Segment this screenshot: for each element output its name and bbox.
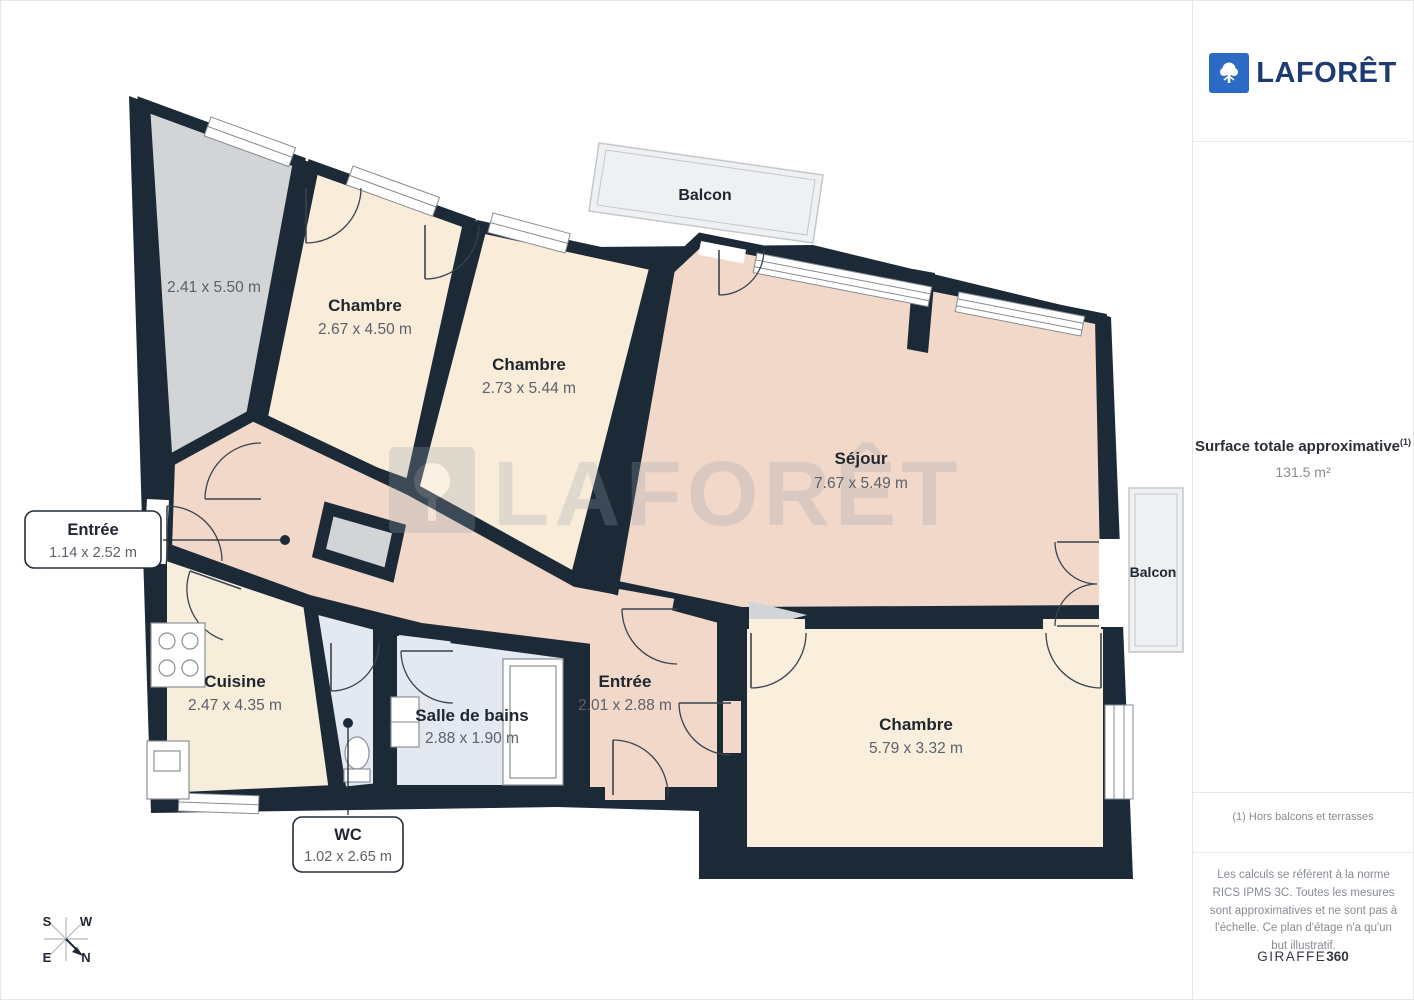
label-chambre3-dims: 5.79 x 3.32 m: [869, 740, 963, 757]
floorplan-canvas: LAFORÊT Entrée 1.14 x 2.52 m WC 1.02 x 2…: [1, 1, 1194, 1000]
watermark-tree-trunk: [428, 493, 436, 521]
label-chambre3-name: Chambre: [879, 715, 953, 734]
surface-footnote: (1) Hors balcons et terrasses: [1193, 811, 1413, 823]
giraffe360-name: GIRAFFE: [1257, 949, 1326, 964]
compass-w: W: [80, 914, 93, 929]
wc-leader-dot: [343, 718, 353, 728]
callout-entree: Entrée 1.14 x 2.52 m: [25, 511, 161, 568]
giraffe360-suffix: 360: [1326, 949, 1349, 964]
floorplan-page: LAFORÊT Entrée 1.14 x 2.52 m WC 1.02 x 2…: [0, 0, 1414, 1000]
room-chambre-3: [741, 623, 1109, 853]
compass-n: N: [81, 950, 90, 965]
callout-wc-dims: 1.02 x 2.65 m: [304, 849, 392, 865]
info-sidebar: LAFORÊT Surface totale approximative(1) …: [1192, 1, 1413, 1000]
label-balcony-top: Balcon: [678, 187, 731, 204]
laforet-wordmark: LAFORÊT: [1256, 57, 1396, 90]
surface-title-sup: (1): [1400, 437, 1411, 447]
label-entree-name: Entrée: [599, 672, 652, 691]
label-sdb-name: Salle de bains: [415, 706, 528, 725]
label-entree-dims: 2.01 x 2.88 m: [578, 697, 672, 714]
callout-entree-dims: 1.14 x 2.52 m: [49, 545, 137, 561]
window-chambre3-right: [1105, 705, 1133, 799]
label-chambre2-name: Chambre: [492, 355, 566, 374]
stove-icon: [151, 623, 205, 687]
sidebar-divider-2: [1193, 792, 1413, 793]
callout-wc: WC 1.02 x 2.65 m: [293, 817, 403, 872]
sidebar-divider-1: [1193, 141, 1413, 142]
label-cuisine-name: Cuisine: [204, 672, 265, 691]
callout-entree-name: Entrée: [67, 521, 118, 539]
room-sejour: [613, 239, 1107, 613]
callout-wc-name: WC: [334, 826, 362, 844]
laforet-logo: LAFORÊT: [1193, 53, 1413, 93]
label-sdb-dims: 2.88 x 1.90 m: [425, 730, 519, 747]
window-cuisine-bottom: [178, 793, 259, 814]
giraffe360-logo: GIRAFFE360: [1193, 949, 1413, 964]
legal-disclaimer: Les calculs se réfèrent à la norme RICS …: [1207, 867, 1400, 956]
label-sejour-dims: 7.67 x 5.49 m: [814, 475, 908, 492]
laforet-tree-icon: [1209, 53, 1249, 93]
compass-e: E: [43, 950, 52, 965]
label-cuisine-dims: 2.47 x 4.35 m: [188, 697, 282, 714]
label-sejour-name: Séjour: [835, 449, 888, 468]
label-unlabeled-dims: 2.41 x 5.50 m: [167, 279, 261, 296]
compass-s: S: [43, 914, 52, 929]
entree-leader-dot: [280, 535, 290, 545]
kitchen-sink-icon: [147, 741, 189, 799]
label-chambre1-dims: 2.67 x 4.50 m: [318, 321, 412, 338]
surface-block: Surface totale approximative(1) 131.5 m²: [1193, 437, 1413, 480]
surface-title-text: Surface totale approximative: [1195, 438, 1400, 455]
label-balcony-right: Balcon: [1130, 564, 1177, 580]
sidebar-divider-3: [1193, 852, 1413, 853]
compass-rose: S W E N: [43, 914, 93, 965]
surface-value: 131.5 m²: [1193, 464, 1413, 480]
watermark-text: LAFORÊT: [493, 441, 962, 545]
surface-title: Surface totale approximative(1): [1193, 437, 1413, 455]
label-chambre1-name: Chambre: [328, 296, 402, 315]
label-chambre2-dims: 2.73 x 5.44 m: [482, 380, 576, 397]
